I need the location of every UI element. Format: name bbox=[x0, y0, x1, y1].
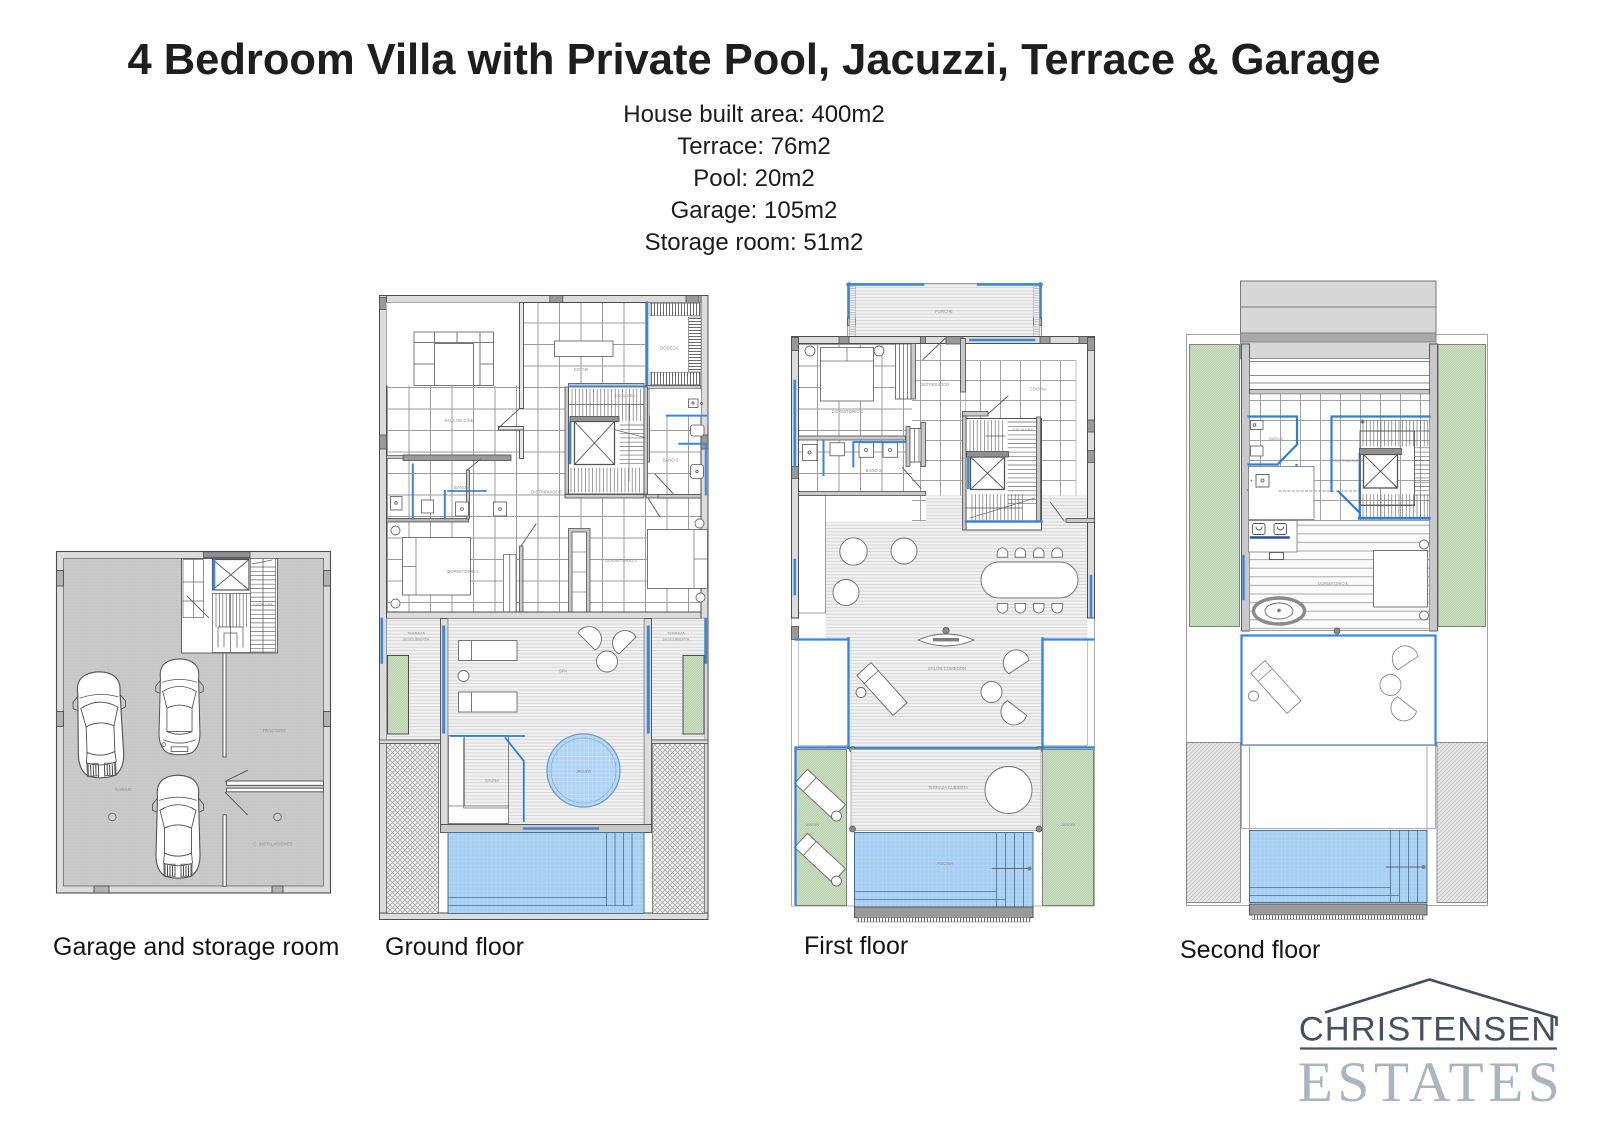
svg-text:COCINA: COCINA bbox=[1030, 387, 1047, 392]
svg-text:SALA DE CINE: SALA DE CINE bbox=[444, 418, 474, 423]
svg-text:CHRISTENSEN: CHRISTENSEN bbox=[1299, 1011, 1557, 1049]
svg-text:C. INSTALACIONES: C. INSTALACIONES bbox=[253, 842, 293, 847]
svg-text:DISTRIBUIDOR: DISTRIBUIDOR bbox=[1335, 459, 1362, 463]
svg-text:TERRAZA: TERRAZA bbox=[667, 632, 685, 636]
svg-text:PISCINA: PISCINA bbox=[937, 861, 954, 866]
svg-text:DISTRIBUIDOR: DISTRIBUIDOR bbox=[531, 490, 562, 495]
svg-text:DORMITORIO 4: DORMITORIO 4 bbox=[447, 569, 479, 574]
svg-text:DESCUBIERTA: DESCUBIERTA bbox=[663, 638, 690, 642]
svg-text:JACUZZI: JACUZZI bbox=[576, 770, 592, 774]
svg-text:SPA: SPA bbox=[559, 669, 567, 674]
svg-text:ESTATES: ESTATES bbox=[1298, 1051, 1565, 1114]
svg-text:ESCALERA: ESCALERA bbox=[615, 394, 635, 398]
svg-text:GARAJE: GARAJE bbox=[115, 787, 132, 792]
svg-text:TERRAZA CUBIERTA: TERRAZA CUBIERTA bbox=[928, 785, 969, 790]
svg-text:DISTRIBUIDOR: DISTRIBUIDOR bbox=[920, 382, 949, 387]
svg-text:DORMITORIO 2: DORMITORIO 2 bbox=[832, 409, 864, 414]
svg-text:JARDÍN: JARDÍN bbox=[805, 822, 819, 827]
svg-text:BODEGA: BODEGA bbox=[660, 346, 679, 351]
svg-text:TERRAZA: TERRAZA bbox=[407, 632, 425, 636]
svg-text:SALÓN COMEDOR: SALÓN COMEDOR bbox=[928, 666, 966, 671]
svg-text:BAÑO 1: BAÑO 1 bbox=[1269, 436, 1283, 441]
svg-text:DESCUBIERTA: DESCUBIERTA bbox=[403, 638, 430, 642]
svg-text:JARDÍN: JARDÍN bbox=[1061, 822, 1075, 827]
svg-text:SAUNA: SAUNA bbox=[485, 778, 499, 783]
svg-text:ESCALERA: ESCALERA bbox=[253, 603, 273, 607]
svg-text:ESTAR: ESTAR bbox=[574, 367, 588, 372]
svg-text:ESCALERA: ESCALERA bbox=[1013, 428, 1033, 432]
svg-text:BAÑO 3: BAÑO 3 bbox=[866, 468, 882, 473]
svg-text:BAÑO 2: BAÑO 2 bbox=[663, 458, 679, 463]
svg-text:BAÑO 4: BAÑO 4 bbox=[454, 485, 470, 490]
svg-text:DORMITORIO 1: DORMITORIO 1 bbox=[1318, 581, 1349, 586]
svg-text:TRASTERO: TRASTERO bbox=[262, 728, 286, 733]
svg-text:PORCHE: PORCHE bbox=[935, 309, 953, 314]
svg-text:DORMITORIO 3: DORMITORIO 3 bbox=[605, 558, 637, 563]
